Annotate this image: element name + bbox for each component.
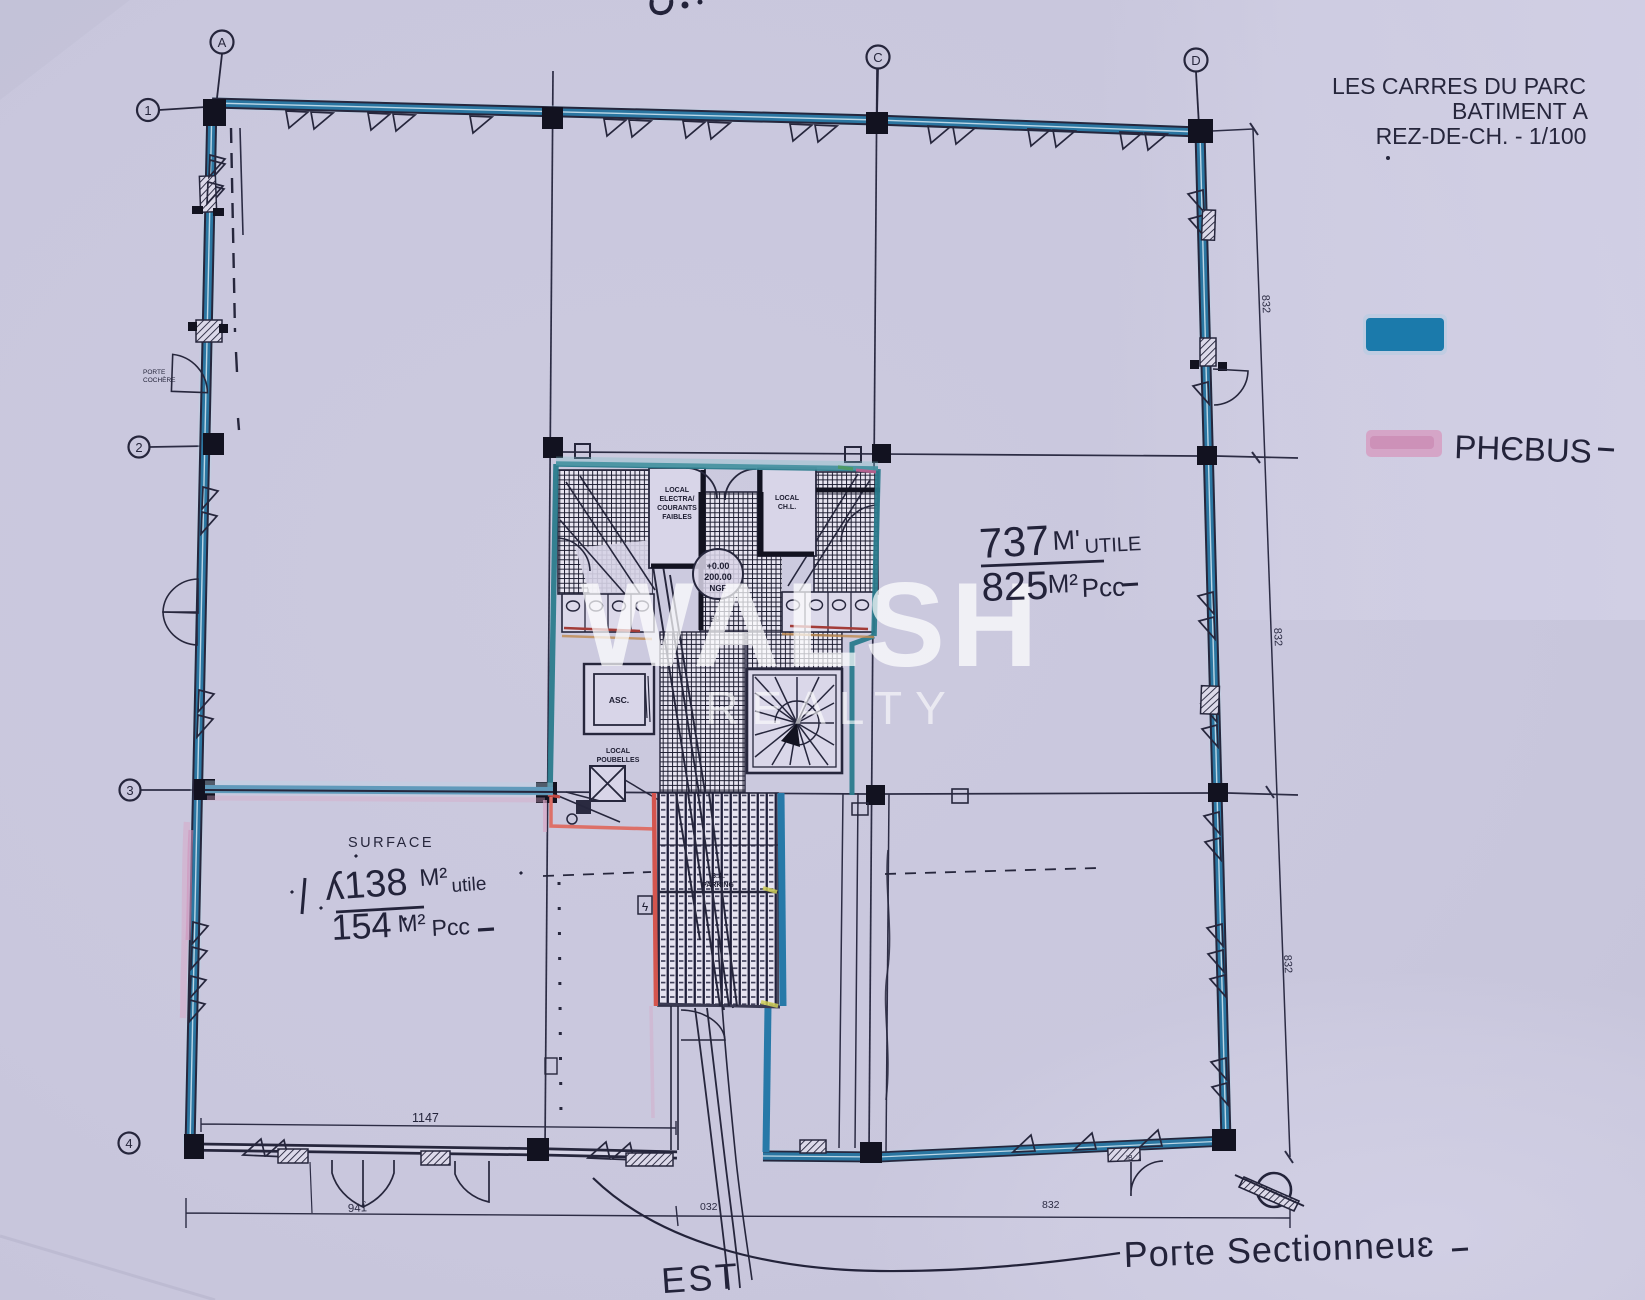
svg-text:A: A bbox=[218, 35, 227, 50]
svg-text:ϟ: ϟ bbox=[642, 900, 649, 914]
svg-text:D: D bbox=[1191, 53, 1200, 68]
svg-text:ELECTRA/: ELECTRA/ bbox=[660, 496, 695, 503]
svg-text:032: 032 bbox=[700, 1201, 718, 1213]
svg-text:LOCAL: LOCAL bbox=[775, 495, 800, 502]
svg-text:LOCAL: LOCAL bbox=[606, 748, 631, 755]
svg-text:2: 2 bbox=[135, 440, 142, 455]
svg-text:1147: 1147 bbox=[412, 1111, 439, 1125]
svg-text:CH.L.: CH.L. bbox=[778, 504, 796, 511]
svg-text:Μʹ: Μʹ bbox=[1052, 525, 1081, 556]
svg-text:COURANTS: COURANTS bbox=[657, 505, 697, 512]
svg-text:COCHÈRE: COCHÈRE bbox=[143, 375, 176, 384]
svg-text:utile: utile bbox=[451, 874, 487, 897]
svg-text:REALTY: REALTY bbox=[705, 682, 959, 734]
svg-text:Μ²: Μ² bbox=[419, 863, 449, 892]
svg-text:LOCAL: LOCAL bbox=[665, 487, 690, 494]
svg-text:Μ²: Μ² bbox=[1047, 568, 1079, 599]
svg-text:3: 3 bbox=[126, 783, 133, 798]
svg-text:154: 154 bbox=[330, 904, 392, 948]
svg-text:WALSH: WALSH bbox=[580, 558, 1043, 692]
svg-text:PORTE: PORTE bbox=[143, 369, 166, 376]
svg-text:EЅT: EЅT bbox=[660, 1255, 742, 1300]
svg-text:BATIMENT Α: BATIMENT Α bbox=[1452, 98, 1589, 124]
svg-text:737: 737 bbox=[978, 516, 1050, 567]
svg-text:REZ-DE-CH. - 1/100: REZ-DE-CH. - 1/100 bbox=[1376, 123, 1587, 149]
svg-text:LES CARRES DU PARC: LES CARRES DU PARC bbox=[1332, 73, 1586, 99]
svg-text:Μ²: Μ² bbox=[397, 910, 426, 938]
svg-text:IB: IB bbox=[1126, 1155, 1133, 1162]
svg-text:825: 825 bbox=[981, 564, 1049, 610]
svg-text:Ρcc: Ρcc bbox=[431, 913, 471, 941]
svg-text:PΗЄBUS: PΗЄBUS bbox=[1454, 428, 1593, 470]
svg-text:832: 832 bbox=[1281, 955, 1294, 974]
svg-text:PARKING: PARKING bbox=[702, 882, 734, 889]
svg-text:4: 4 bbox=[125, 1136, 132, 1151]
svg-text:FAIBLES: FAIBLES bbox=[662, 514, 692, 521]
svg-text:1: 1 bbox=[144, 103, 151, 118]
svg-text:C: C bbox=[873, 50, 882, 65]
svg-text:ASC.: ASC. bbox=[609, 695, 629, 705]
svg-text:832: 832 bbox=[1259, 295, 1272, 314]
svg-text:POUBELLES: POUBELLES bbox=[597, 757, 640, 764]
svg-text:832: 832 bbox=[1042, 1199, 1060, 1211]
svg-text:ʎ138: ʎ138 bbox=[324, 861, 409, 909]
svg-text:UTILE: UTILE bbox=[1084, 533, 1142, 558]
svg-text:B.A.: B.A. bbox=[711, 873, 725, 880]
svg-text:SURFACE: SURFACE bbox=[348, 835, 434, 851]
svg-text:832: 832 bbox=[1271, 628, 1284, 647]
svg-text:Ρcc: Ρcc bbox=[1081, 572, 1125, 603]
